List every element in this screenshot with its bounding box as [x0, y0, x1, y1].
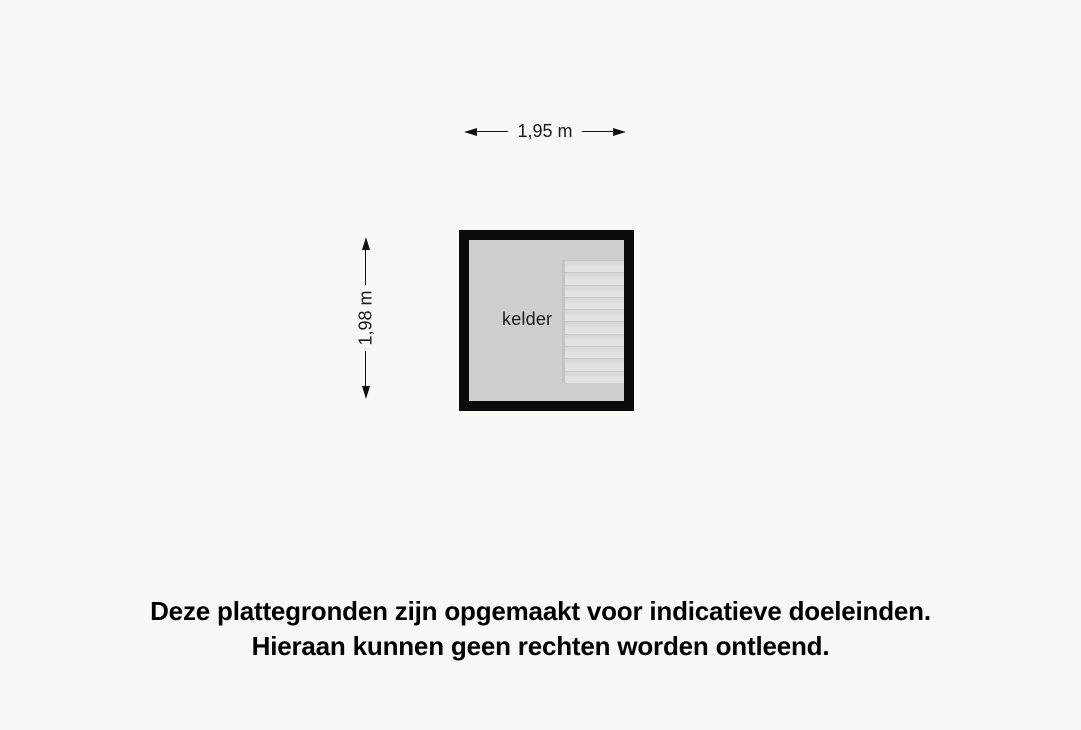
room-kelder: kelder [459, 230, 634, 411]
stair-step [565, 321, 624, 333]
height-dimension-label: 1,98 m [355, 290, 376, 345]
arrow-up-icon [362, 237, 370, 250]
dimension-line [477, 131, 508, 133]
stair-step [565, 260, 624, 272]
height-dimension-label-box: 1,98 m [357, 285, 374, 351]
stair-step [565, 334, 624, 346]
dimension-line [365, 250, 367, 285]
height-dimension: 1,98 m [357, 237, 374, 399]
disclaimer-line-2: Hieraan kunnen geen rechten worden ontle… [0, 629, 1081, 664]
arrow-left-icon [464, 128, 477, 136]
arrow-right-icon [613, 128, 626, 136]
stair-step [565, 272, 624, 284]
disclaimer-line-1: Deze plattegronden zijn opgemaakt voor i… [0, 594, 1081, 629]
stair-step [565, 297, 624, 309]
room-label: kelder [502, 309, 552, 330]
arrow-down-icon [362, 386, 370, 399]
stair-step [565, 285, 624, 297]
width-dimension: 1,95 m [464, 123, 626, 140]
stairs [562, 260, 624, 383]
dimension-line [582, 131, 613, 133]
dimension-line [365, 351, 367, 386]
disclaimer: Deze plattegronden zijn opgemaakt voor i… [0, 594, 1081, 664]
stair-step [565, 371, 624, 383]
stair-step [565, 309, 624, 321]
stair-step [565, 358, 624, 370]
stair-step [565, 346, 624, 358]
width-dimension-label: 1,95 m [508, 121, 581, 142]
floor-plan-canvas: 1,95 m 1,98 m kelder Deze plattegronden … [0, 0, 1081, 730]
